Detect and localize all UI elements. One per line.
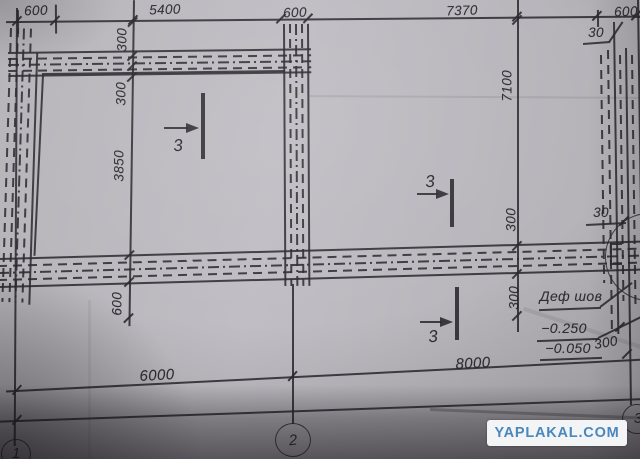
def-shov-underline <box>539 307 601 311</box>
dim-600-top-right: 600 <box>612 5 640 19</box>
joint-detail-line <box>610 243 612 265</box>
callout-30-top-underline <box>583 41 610 44</box>
dim-600-left-bottom: 600 <box>110 264 124 344</box>
grid-bubble-1-label: 1 <box>6 445 26 459</box>
dim-3850-left: 3850 <box>112 126 126 206</box>
label-elevation-upper: −0.250 <box>529 321 599 335</box>
grid-2-stem <box>292 284 294 424</box>
watermark-text: YAPLAKAL.COM <box>494 425 619 441</box>
dim-300-left-lower: 300 <box>114 54 128 134</box>
middle-wall <box>283 24 310 286</box>
callout-30-top: 30 <box>582 26 610 40</box>
section-label: 3 <box>165 135 191 157</box>
dim-7100-right: 7100 <box>500 46 514 126</box>
dim-600-top-left: 600 <box>22 4 50 18</box>
watermark-badge: YAPLAKAL.COM <box>487 420 627 446</box>
blueprint-photo: 600 5400 600 7370 600 300 300 3850 600 7… <box>0 0 640 459</box>
joint-detail-line <box>610 243 622 245</box>
bottom-wall <box>0 240 640 288</box>
callout-30-mid: 30 <box>587 206 615 220</box>
joint-detail-line <box>610 263 622 265</box>
dim-5400-top: 5400 <box>143 2 187 17</box>
right-wall-line <box>607 50 613 335</box>
paper-crease <box>310 95 640 99</box>
section-label: 3 <box>420 326 446 348</box>
label-def-shov: Деф шов <box>536 289 606 303</box>
grid-bubble-2-label: 2 <box>282 431 304 450</box>
dim-7370-top: 7370 <box>440 3 484 18</box>
top-dimension-line <box>0 0 640 36</box>
dim-8000-bottom: 8000 <box>433 354 514 373</box>
grid-bubble-3-label: 3 <box>628 410 640 427</box>
section-label: 3 <box>417 171 443 193</box>
dim-600-top-mid: 600 <box>281 6 309 20</box>
dim-300-right-upper: 300 <box>504 180 518 260</box>
